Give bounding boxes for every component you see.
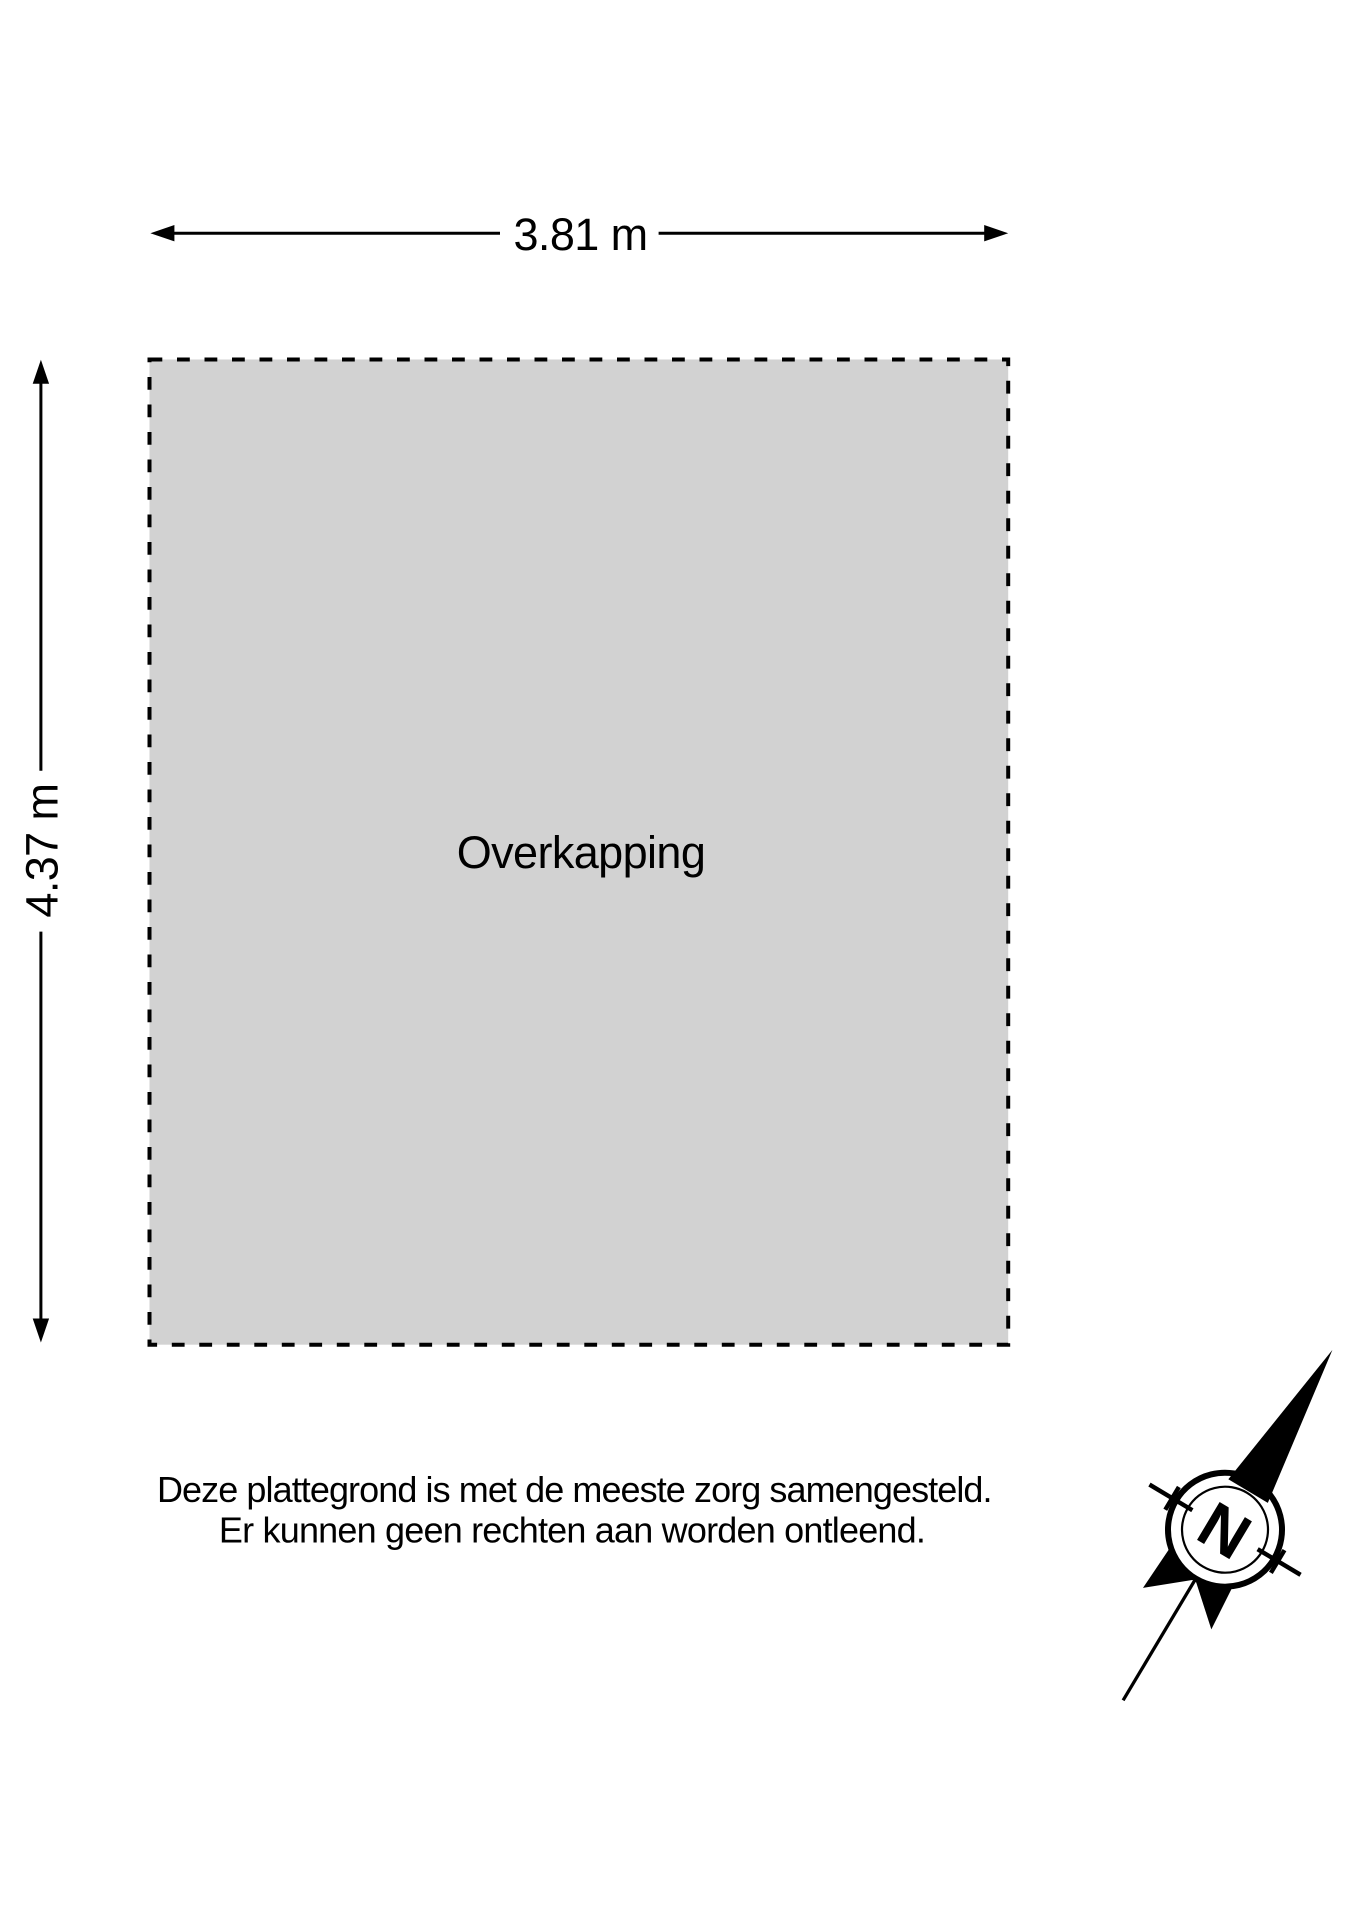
- svg-text:4.37 m: 4.37 m: [17, 784, 68, 918]
- svg-text:Er kunnen geen rechten aan wor: Er kunnen geen rechten aan worden ontlee…: [219, 1510, 925, 1551]
- svg-text:Overkapping: Overkapping: [457, 827, 706, 878]
- svg-text:Deze plattegrond is met de mee: Deze plattegrond is met de meeste zorg s…: [157, 1469, 992, 1510]
- svg-text:3.81 m: 3.81 m: [514, 209, 648, 260]
